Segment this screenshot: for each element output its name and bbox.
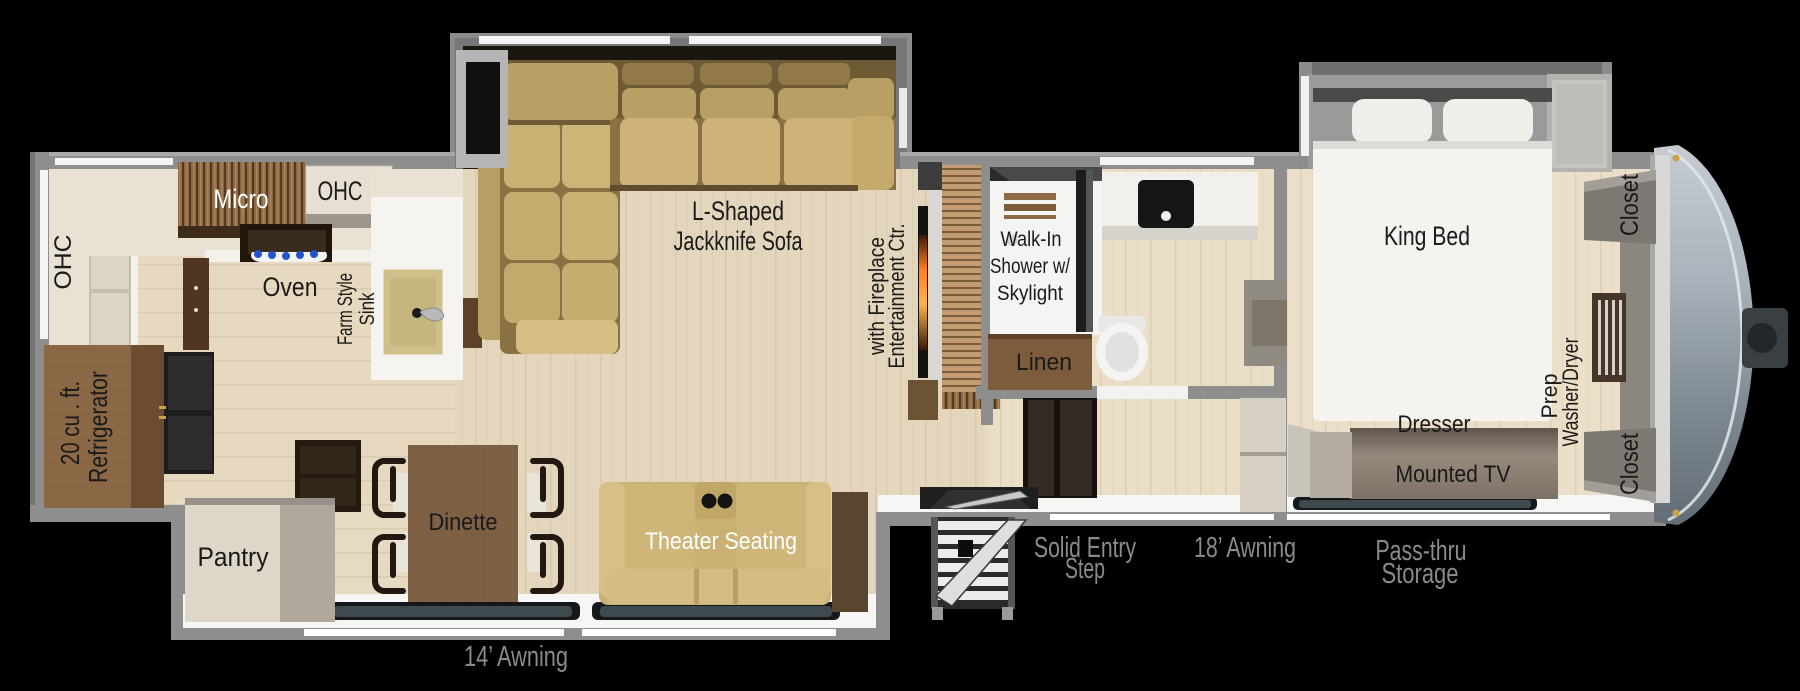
svg-text:Storage: Storage <box>1382 558 1459 590</box>
svg-text:Pantry: Pantry <box>198 542 269 572</box>
svg-text:Jackknife Sofa: Jackknife Sofa <box>674 226 804 256</box>
svg-text:L-Shaped: L-Shaped <box>692 196 784 226</box>
svg-text:Farm Style: Farm Style <box>334 273 357 345</box>
svg-text:Walk-In: Walk-In <box>1001 228 1062 251</box>
svg-text:King Bed: King Bed <box>1384 221 1470 251</box>
svg-text:OHC: OHC <box>50 235 77 290</box>
svg-text:Dresser: Dresser <box>1398 411 1471 438</box>
svg-text:with Fireplace: with Fireplace <box>864 237 889 356</box>
svg-text:Sink: Sink <box>356 292 379 325</box>
svg-text:Step: Step <box>1065 553 1105 585</box>
svg-text:Closet: Closet <box>1616 433 1644 495</box>
svg-text:Closet: Closet <box>1616 174 1644 236</box>
svg-text:Skylight: Skylight <box>997 282 1063 305</box>
svg-text:Shower w/: Shower w/ <box>990 255 1070 278</box>
svg-text:Mounted TV: Mounted TV <box>1396 461 1511 488</box>
svg-text:Dinette: Dinette <box>429 509 498 536</box>
svg-text:Oven: Oven <box>263 272 318 302</box>
svg-text:Theater Seating: Theater Seating <box>645 528 797 555</box>
svg-text:18’ Awning: 18’ Awning <box>1194 532 1296 564</box>
svg-text:OHC: OHC <box>318 176 363 206</box>
svg-text:14’ Awning: 14’ Awning <box>464 641 568 673</box>
svg-text:Prep: Prep <box>1537 374 1562 419</box>
svg-text:Refrigerator: Refrigerator <box>83 371 113 483</box>
svg-text:20 cu . ft.: 20 cu . ft. <box>55 381 85 465</box>
svg-text:Linen: Linen <box>1016 349 1072 376</box>
svg-text:Micro: Micro <box>214 184 269 214</box>
